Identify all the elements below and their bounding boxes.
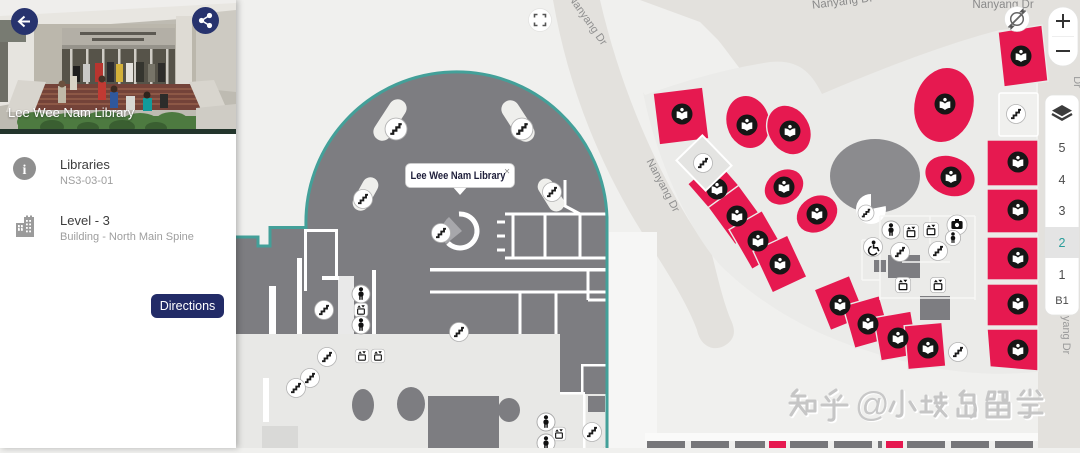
svg-text:4: 4 <box>1059 173 1066 187</box>
svg-text:i: i <box>23 163 27 178</box>
svg-text:3: 3 <box>1059 204 1066 218</box>
svg-text:Lee Wee Nam Library: Lee Wee Nam Library <box>411 170 506 182</box>
svg-text:5: 5 <box>1059 141 1066 155</box>
svg-text:Dr: Dr <box>1071 76 1080 88</box>
svg-text:1: 1 <box>1059 268 1066 282</box>
svg-text:×: × <box>504 167 510 178</box>
svg-text:2: 2 <box>1059 236 1066 250</box>
svg-text:B1: B1 <box>1055 295 1068 307</box>
svg-text:@: @ <box>855 386 890 424</box>
